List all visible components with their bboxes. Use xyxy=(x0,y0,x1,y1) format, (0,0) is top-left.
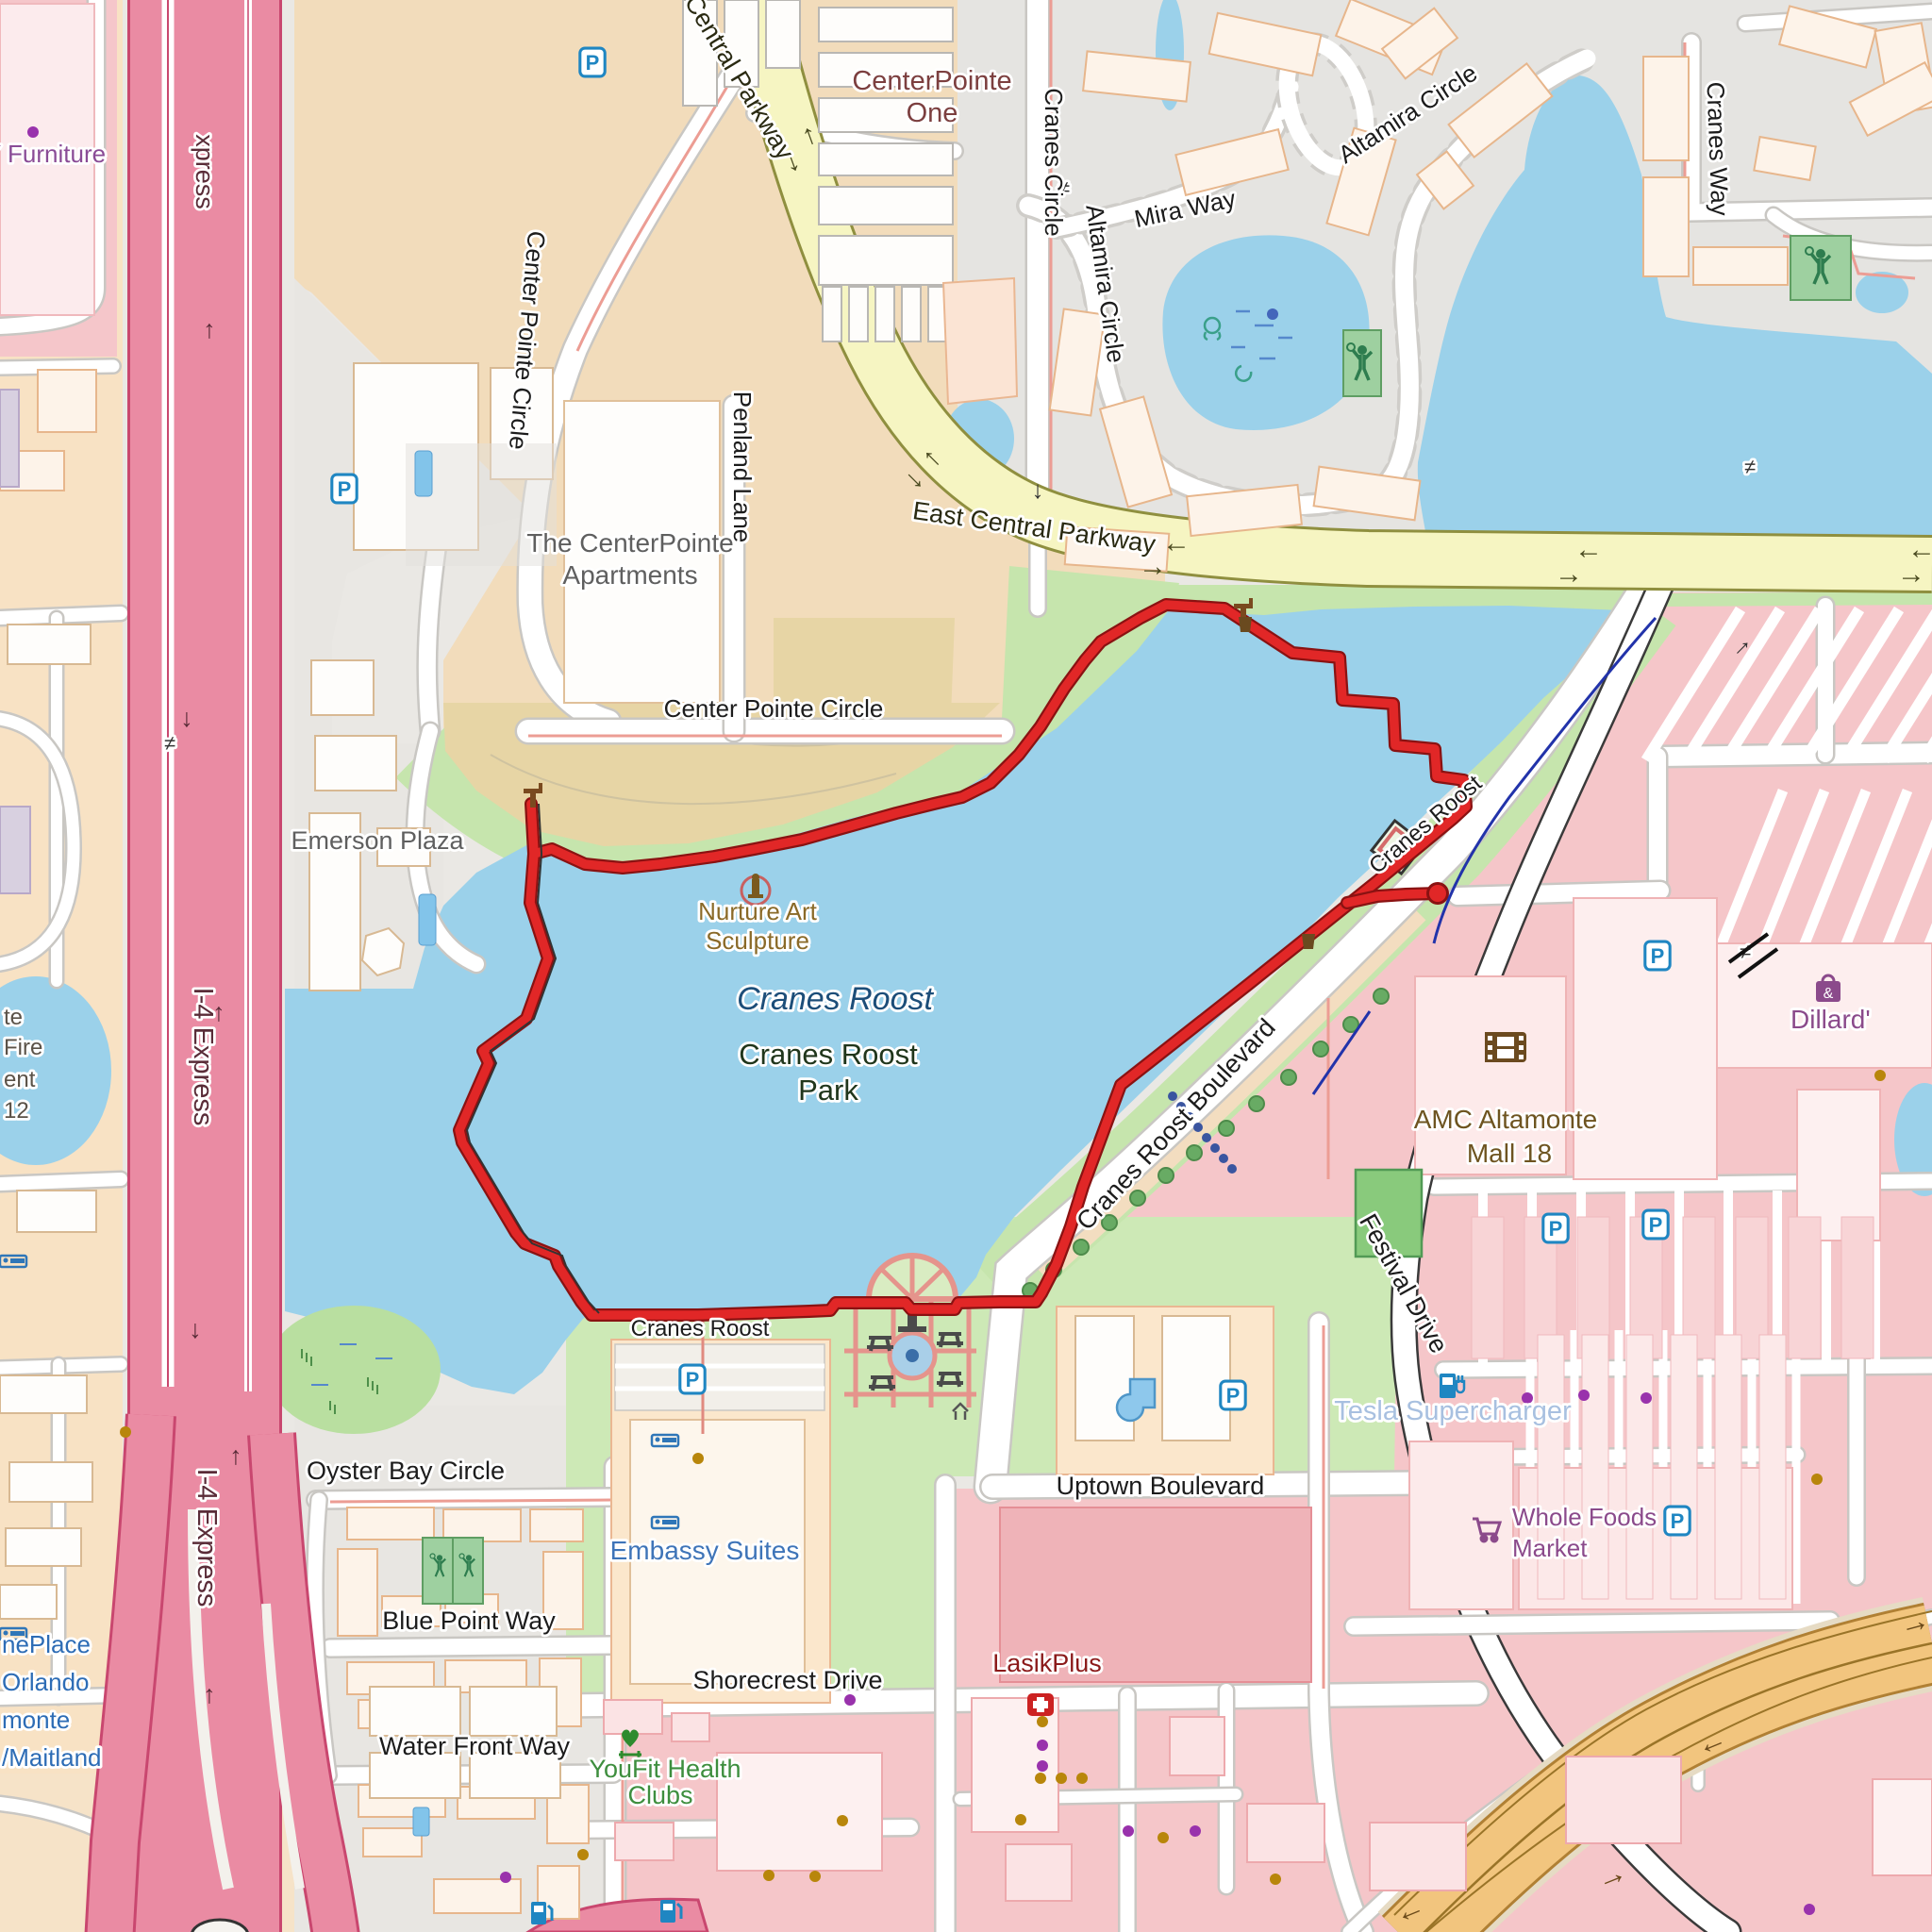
svg-text:Orlando: Orlando xyxy=(2,1668,90,1696)
svg-text:Apartments: Apartments xyxy=(562,560,697,590)
svg-text:P: P xyxy=(686,1368,700,1391)
svg-text:P: P xyxy=(1549,1217,1563,1241)
svg-text:P: P xyxy=(338,477,352,501)
svg-text:Center Pointe Circle: Center Pointe Circle xyxy=(664,694,884,723)
svg-text:≠: ≠ xyxy=(164,731,175,755)
svg-text:One: One xyxy=(907,98,958,128)
svg-text:YouFit Health: YouFit Health xyxy=(589,1755,741,1783)
svg-text:↓: ↓ xyxy=(189,1315,202,1343)
svg-text:↑: ↑ xyxy=(203,1680,216,1708)
svg-text:CenterPointe: CenterPointe xyxy=(852,66,1011,96)
svg-text:Dillard': Dillard' xyxy=(1790,1005,1871,1034)
svg-text:/Maitland: /Maitland xyxy=(2,1743,102,1772)
svg-text:Cranes Circle: Cranes Circle xyxy=(1040,88,1068,237)
svg-text:Emerson Plaza: Emerson Plaza xyxy=(291,826,464,855)
svg-text:Market: Market xyxy=(1512,1534,1588,1562)
svg-text:AMC Altamonte: AMC Altamonte xyxy=(1414,1105,1598,1134)
svg-text:Clubs: Clubs xyxy=(627,1781,692,1809)
svg-text:te: te xyxy=(4,1005,23,1030)
svg-text:P: P xyxy=(1651,944,1665,968)
svg-text:Sculpture: Sculpture xyxy=(706,926,809,955)
svg-text:↑: ↑ xyxy=(229,1441,242,1470)
svg-text:≠: ≠ xyxy=(1744,455,1756,478)
svg-text:Uptown Boulevard: Uptown Boulevard xyxy=(1057,1472,1265,1500)
svg-text:Tesla Supercharger: Tesla Supercharger xyxy=(1334,1396,1572,1426)
svg-text:Mall 18: Mall 18 xyxy=(1467,1139,1552,1168)
svg-text:Cranes Way: Cranes Way xyxy=(1702,81,1735,216)
svg-text:P: P xyxy=(1671,1509,1685,1533)
svg-text:→: → xyxy=(1555,558,1583,590)
svg-text:Whole Foods: Whole Foods xyxy=(1512,1503,1657,1531)
svg-text:Cranes Roost: Cranes Roost xyxy=(739,1038,918,1071)
svg-text:xpress: xpress xyxy=(191,134,219,209)
svg-text:↓: ↓ xyxy=(180,704,193,732)
svg-text:12: 12 xyxy=(4,1098,29,1124)
svg-text:monte: monte xyxy=(2,1706,70,1734)
svg-text:The CenterPointe: The CenterPointe xyxy=(526,528,733,558)
svg-text:Blue Point Way: Blue Point Way xyxy=(382,1607,556,1635)
svg-text:ent: ent xyxy=(4,1067,36,1092)
svg-text:Nurture Art: Nurture Art xyxy=(698,897,817,925)
svg-text:Y Furniture: Y Furniture xyxy=(0,140,106,168)
svg-text:Cranes Roost: Cranes Roost xyxy=(737,981,934,1017)
svg-text:→: → xyxy=(1897,558,1925,590)
svg-text:Water Front Way: Water Front Way xyxy=(379,1732,571,1760)
svg-text:Cranes Roost: Cranes Roost xyxy=(631,1316,770,1341)
svg-text:P: P xyxy=(1226,1384,1241,1407)
svg-text:↑: ↑ xyxy=(203,315,216,343)
svg-text:P: P xyxy=(586,51,600,75)
svg-text:&: & xyxy=(1824,986,1834,1002)
svg-text:LasikPlus: LasikPlus xyxy=(992,1649,1102,1677)
svg-text:Shorecrest Drive: Shorecrest Drive xyxy=(692,1666,882,1694)
svg-text:Fire: Fire xyxy=(4,1035,42,1060)
svg-text:Embassy Suites: Embassy Suites xyxy=(610,1536,800,1565)
svg-text:↓: ↓ xyxy=(1032,475,1044,504)
svg-text:I-4 Express: I-4 Express xyxy=(192,1469,222,1607)
svg-text:Penland Lane: Penland Lane xyxy=(728,391,757,542)
svg-text:I-4 Express: I-4 Express xyxy=(188,988,218,1126)
svg-text:nePlace: nePlace xyxy=(2,1630,91,1658)
svg-text:Park: Park xyxy=(798,1074,858,1107)
svg-text:Oyster Bay Circle: Oyster Bay Circle xyxy=(307,1457,505,1485)
svg-text:P: P xyxy=(1649,1213,1663,1237)
